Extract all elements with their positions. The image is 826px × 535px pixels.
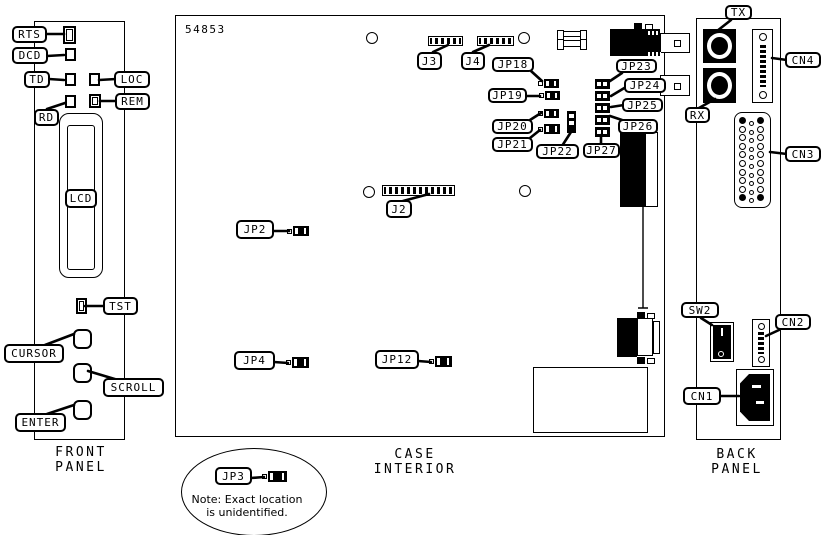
enter-button (73, 400, 92, 420)
cn3-pin (739, 169, 746, 176)
cn3-pin (739, 186, 746, 193)
cn3-pin (749, 190, 754, 195)
callout-lcd: LCD (65, 189, 97, 208)
case-interior-caption: CASE INTERIOR (352, 447, 478, 477)
inlet-pin-slot (752, 385, 761, 388)
cn3-pin (757, 143, 764, 150)
callout-jp23: JP23 (616, 59, 657, 73)
j3-header (428, 36, 463, 46)
cn3-pin (749, 198, 754, 203)
td-led (65, 73, 76, 86)
internal-dsub-face (637, 318, 653, 356)
mounting-hole (518, 32, 530, 44)
cn3-pin (739, 117, 746, 124)
jp21-jumper (538, 124, 560, 134)
callout-rts: RTS (12, 26, 47, 43)
cn3-connector (734, 112, 771, 208)
cn3-pin (749, 147, 754, 152)
jp23-jumper (595, 79, 610, 89)
cn3-pin (749, 121, 754, 126)
pin-strip (646, 31, 660, 35)
inlet-body (740, 374, 770, 421)
sw2-power-switch (710, 322, 734, 362)
callout-scroll: SCROLL (103, 378, 164, 397)
jp27-jumper (595, 127, 610, 137)
cn3-pin (757, 151, 764, 158)
rem-led (89, 94, 101, 108)
cn3-pin (757, 169, 764, 176)
cn3-pin (757, 134, 764, 141)
callout-jp19: JP19 (488, 88, 527, 103)
jp4-jumper (286, 357, 309, 368)
cn3-pin (739, 143, 746, 150)
callout-cn1: CN1 (683, 387, 721, 405)
callout-jp4: JP4 (234, 351, 275, 370)
jp3-jumper (262, 471, 287, 482)
cn3-pin (739, 151, 746, 158)
callout-jp21: JP21 (492, 137, 533, 152)
fuse (558, 40, 586, 47)
cn3-pin (739, 194, 746, 201)
connector-tab (645, 24, 653, 30)
mounting-hole (366, 32, 378, 44)
dsub-screw-hole (758, 356, 765, 363)
callout-j4: J4 (461, 52, 485, 70)
tst-led (76, 298, 87, 314)
callout-jp26: JP26 (618, 119, 658, 134)
cn3-pin (739, 177, 746, 184)
callout-td: TD (24, 71, 50, 88)
cn3-pin (749, 164, 754, 169)
jp25-jumper (595, 103, 610, 113)
cn1-power-inlet (736, 369, 774, 426)
scroll-button (73, 363, 92, 383)
cn3-pin (757, 126, 764, 133)
fuse (558, 31, 586, 37)
callout-jp27: JP27 (583, 143, 620, 158)
jp19-jumper (539, 91, 560, 100)
dsub-pins (758, 332, 764, 354)
jp22-jumper (567, 111, 576, 133)
cn3-pin (749, 130, 754, 135)
callout-enter: ENTER (15, 413, 66, 432)
callout-cursor: CURSOR (4, 344, 64, 363)
note-text: Note: Exact location is unidentified. (186, 493, 308, 519)
rx-connector (703, 68, 736, 103)
connector-column (620, 130, 645, 207)
jp20-jumper (538, 109, 559, 118)
cn3-pin (757, 117, 764, 124)
callout-rem: REM (115, 93, 150, 110)
callout-jp2: JP2 (236, 220, 274, 239)
cn3-pin (739, 160, 746, 167)
rd-led (65, 95, 76, 108)
connector-column-side (645, 132, 658, 207)
front-panel-caption: FRONT PANEL (25, 445, 137, 475)
callout-jp22: JP22 (536, 144, 579, 159)
cn3-pin (757, 194, 764, 201)
mounting-hole (363, 186, 375, 198)
callout-loc: LOC (114, 71, 150, 88)
dsub-screw-hole (759, 33, 767, 41)
screw-post (660, 33, 690, 53)
jp18-jumper (538, 79, 559, 88)
callout-jp18: JP18 (492, 57, 534, 72)
switch-off-mark (718, 351, 724, 357)
cn3-pin (757, 177, 764, 184)
callout-cn4: CN4 (785, 52, 821, 68)
callout-jp3: JP3 (215, 467, 252, 485)
mounting-hole (519, 185, 531, 197)
callout-j3: J3 (417, 52, 442, 70)
callout-jp24: JP24 (624, 78, 666, 93)
jp26-jumper (595, 115, 610, 125)
jp12-jumper (429, 356, 452, 367)
dsub-screw-hole (759, 91, 767, 99)
callout-rd: RD (34, 109, 59, 126)
connector-tab (637, 357, 645, 364)
callout-jp20: JP20 (492, 119, 533, 134)
cn3-pin (739, 126, 746, 133)
inlet-pin-slot (756, 401, 764, 404)
panel-layout-diagram: 54853 (0, 0, 826, 535)
cn3-pin (757, 160, 764, 167)
j4-header (477, 36, 514, 46)
callout-dcd: DCD (12, 47, 48, 64)
j2-header (382, 185, 455, 196)
tx-connector (703, 29, 736, 63)
pin-strip (646, 52, 661, 56)
board-number: 54853 (185, 23, 226, 36)
switch-on-mark (721, 328, 723, 336)
cn3-pin (749, 181, 754, 186)
loc-led (89, 73, 100, 86)
internal-dsub-bracket (653, 321, 660, 354)
callout-tx: TX (725, 5, 752, 20)
cn2-connector (752, 319, 770, 367)
callout-rx: RX (685, 107, 710, 123)
back-panel-caption: BACK PANEL (687, 447, 787, 477)
dcd-led (65, 48, 76, 61)
cn3-pin (749, 173, 754, 178)
connector-tab (647, 358, 655, 364)
jp2-jumper (287, 226, 309, 236)
callout-jp25: JP25 (622, 98, 663, 112)
dsub-screw-hole (758, 323, 765, 330)
cn3-pin (749, 155, 754, 160)
connector-tab (634, 23, 642, 30)
cursor-button (73, 329, 92, 349)
cn4-connector (752, 29, 773, 103)
cn3-pin (757, 186, 764, 193)
power-supply-area (533, 367, 648, 433)
internal-dsub-body (617, 318, 637, 357)
callout-sw2: SW2 (681, 302, 719, 318)
callout-cn2: CN2 (775, 314, 811, 330)
cn3-pin (739, 134, 746, 141)
note-ellipse (181, 448, 327, 535)
callout-tst: TST (103, 297, 138, 315)
rts-led (63, 26, 76, 44)
dsub-pins (760, 45, 766, 87)
jp24-jumper (595, 91, 610, 101)
cn3-pin (749, 138, 754, 143)
callout-cn3: CN3 (785, 146, 821, 162)
callout-j2: J2 (386, 200, 412, 218)
callout-jp12: JP12 (375, 350, 419, 369)
